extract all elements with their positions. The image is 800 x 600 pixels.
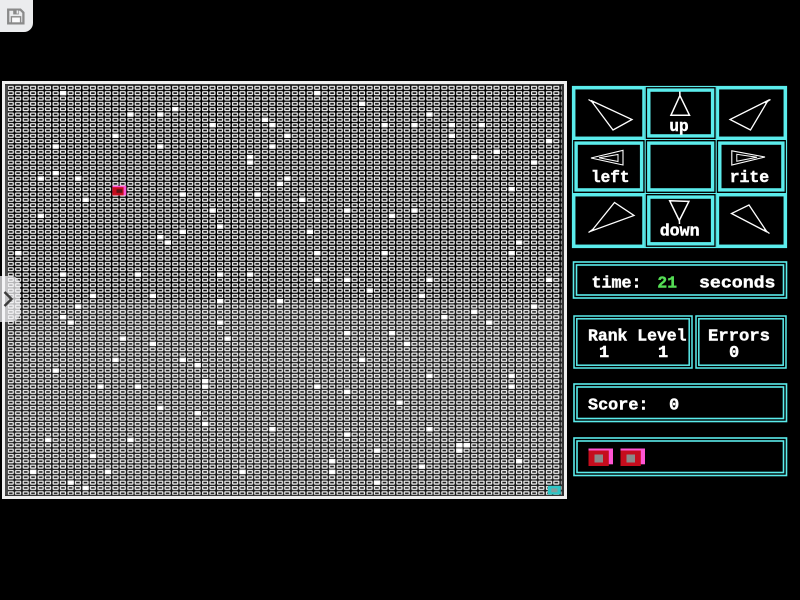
svg-text:Score:: Score: <box>588 397 649 416</box>
svg-text:21: 21 <box>657 275 677 294</box>
svg-text:1: 1 <box>658 344 668 363</box>
svg-text:down: down <box>660 223 700 242</box>
svg-text:rite: rite <box>730 169 770 188</box>
svg-text:0: 0 <box>729 344 739 363</box>
svg-text:seconds: seconds <box>699 275 776 294</box>
svg-text:1: 1 <box>599 344 609 363</box>
svg-text:left: left <box>591 169 630 188</box>
svg-text:time:: time: <box>592 275 642 294</box>
svg-text:up: up <box>669 118 688 137</box>
svg-text:0: 0 <box>669 397 679 416</box>
